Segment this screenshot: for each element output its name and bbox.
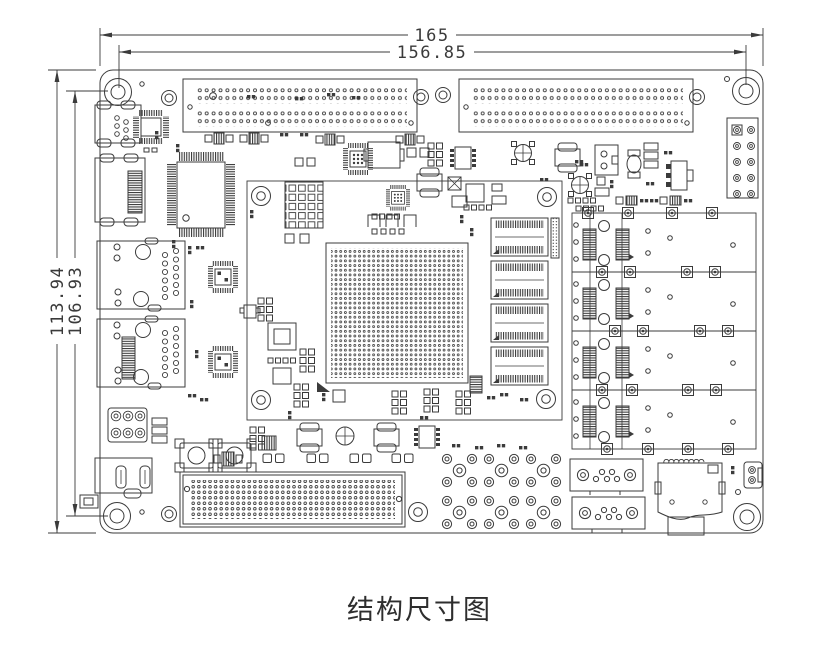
pin-strip [470,376,482,393]
crystal [448,177,461,190]
push-button-1[interactable] [175,439,218,472]
pin-strip [551,218,559,258]
main-qfp-chip [167,152,235,237]
top-connector-left [183,79,417,132]
pad-cluster [526,454,560,486]
edge-stub-connector [80,495,98,508]
rj45-port-1 [97,238,185,311]
standoff-ring [162,507,177,522]
slot-row-3 [574,331,736,390]
pad-cluster [484,454,518,486]
pad-cluster [484,496,518,528]
bottom-mid-parts [214,423,440,466]
cpu-bga [317,243,468,392]
passive-cluster-row [205,133,424,145]
standoff-ring [162,91,177,106]
standoff-ring [436,88,451,103]
pad-array [428,143,443,166]
standoff-ring [690,90,705,105]
slot-row-4 [574,390,736,449]
dim-label-106-93: 106.93 [66,266,86,336]
power-terminal [108,408,167,443]
slot-row-2 [574,272,736,331]
ddr-chip-3 [491,304,548,342]
board-drawing-svg: 165 156.85 113.94 106.93 [0,0,839,653]
mounting-hole-bottom-right [734,504,761,531]
via [736,490,741,495]
power-module-grid [285,158,323,243]
arrow-down-icon [55,521,60,533]
standoff-ring [409,503,428,522]
sd-card-slot [655,459,725,535]
ethernet-phy-1 [208,261,238,293]
pcb-structure-dimension-drawing: 165 156.85 113.94 106.93 [0,0,839,653]
serial-port-footprint-1 [570,459,643,495]
dimension-top-inner: 156.85 [119,43,746,88]
arrow-right-icon [751,33,763,38]
board-to-board-connector [180,472,405,527]
left-middle-parts [240,298,345,407]
serial-port-footprint-2 [572,497,645,533]
arrow-up-icon [55,70,60,82]
console-connector [95,154,145,226]
below-bga-clusters [392,389,528,414]
pad-cluster [442,454,476,486]
arrow-left-icon [119,50,131,55]
small-qfn-chip [133,110,169,152]
via [140,510,144,514]
ddr-chip-1 [491,218,548,256]
pin-header-2x5 [727,118,758,198]
slot-row-1 [574,213,736,272]
drawing-caption: 结构尺寸图 [0,588,839,627]
dc-jack [95,458,152,498]
pad [407,148,416,157]
via [140,82,144,86]
ethernet-phy-2 [208,346,238,378]
arrow-left-icon [100,33,112,38]
arrow-up-icon [73,91,78,103]
qfn-small-2 [464,184,506,210]
soic8-chip [450,147,476,169]
top-connector-right [459,79,693,132]
ddr-chip-2 [491,261,548,299]
right-top-parts [555,143,693,211]
qfn-with-pads [372,185,410,219]
arrow-right-icon [734,50,746,55]
via [725,77,730,82]
dim-label-113-94: 113.94 [48,266,68,336]
pad-cluster [526,496,560,528]
trimmer [512,142,535,165]
dim-label-156-85: 156.85 [397,43,467,63]
led-footprint [731,462,763,488]
inductor [417,168,442,197]
pad-cluster [442,496,476,528]
rj45-port-2 [97,316,185,389]
ddr-chip-4 [491,347,548,385]
mini-pcie-slot-region [572,208,756,455]
arrow-down-icon [73,504,78,516]
standoff-ring [414,90,429,105]
